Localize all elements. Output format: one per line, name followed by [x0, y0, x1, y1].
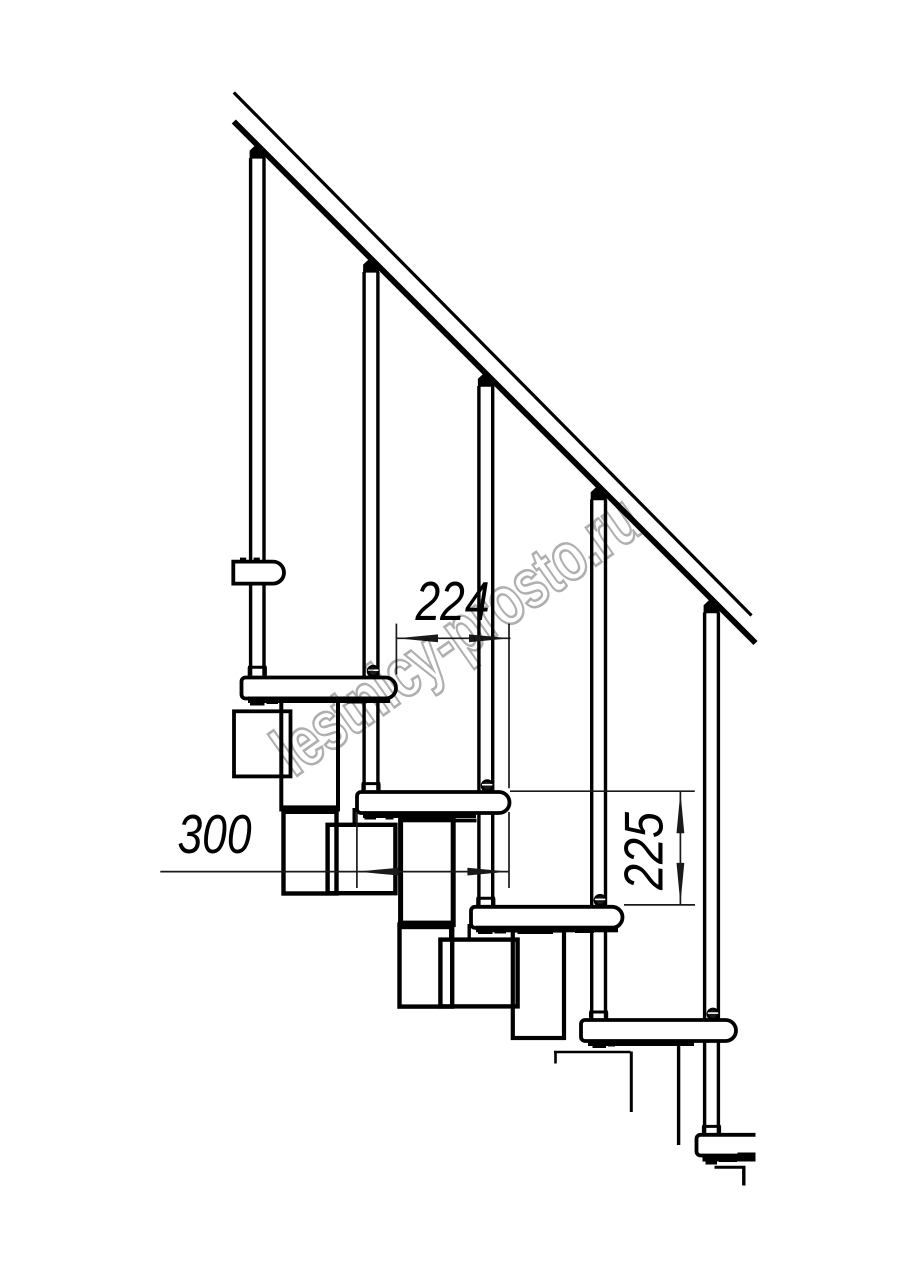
svg-text:225: 225	[613, 812, 675, 891]
svg-text:300: 300	[178, 803, 252, 865]
